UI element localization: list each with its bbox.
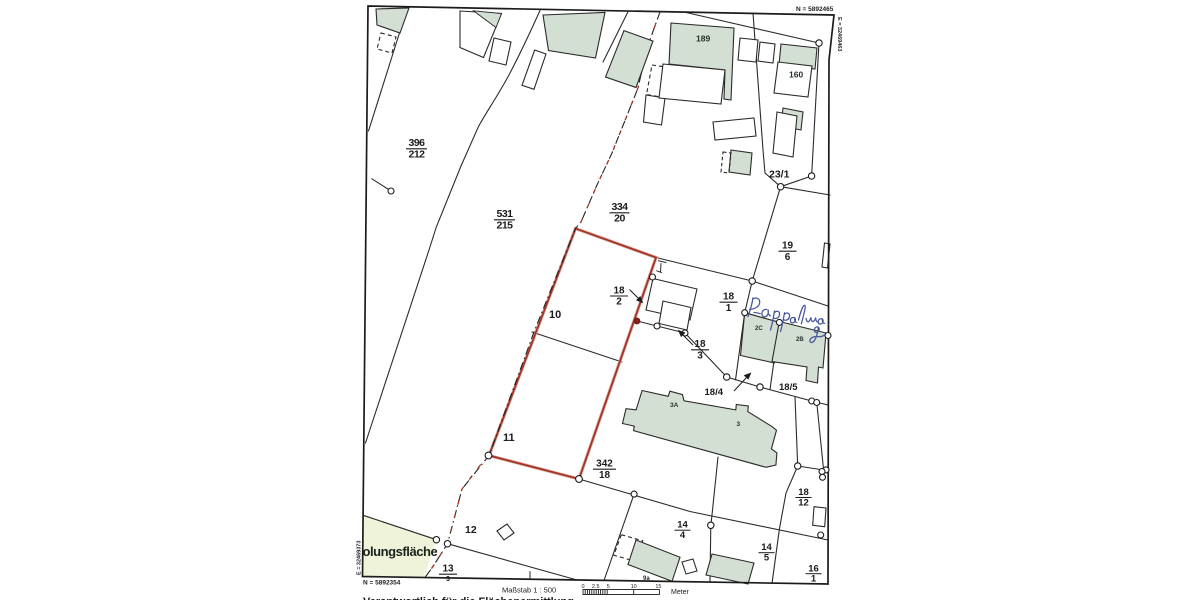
svg-text:5: 5	[764, 553, 770, 564]
svg-text:10: 10	[549, 309, 561, 321]
svg-text:18: 18	[613, 286, 625, 297]
svg-text:Meter: Meter	[671, 589, 690, 596]
svg-text:3A: 3A	[670, 402, 679, 409]
svg-text:160: 160	[789, 70, 803, 80]
svg-text:14: 14	[761, 542, 772, 553]
svg-text:531: 531	[496, 208, 513, 220]
svg-text:11: 11	[503, 432, 515, 444]
svg-text:6: 6	[785, 252, 791, 263]
svg-text:3: 3	[446, 576, 450, 583]
svg-text:olungsfläche: olungsfläche	[363, 544, 438, 559]
svg-text:342: 342	[596, 459, 613, 470]
svg-text:12: 12	[798, 498, 809, 509]
svg-text:18: 18	[599, 470, 611, 481]
svg-text:Verantwortlich für die Flächen: Verantwortlich für die Flächenermittlung	[363, 596, 574, 600]
svg-text:E = 32469373: E = 32469373	[357, 541, 363, 575]
svg-text:215: 215	[496, 220, 513, 232]
svg-text:4: 4	[680, 530, 686, 541]
svg-text:12: 12	[465, 524, 477, 536]
svg-text:N = 5892465: N = 5892465	[796, 6, 834, 13]
svg-text:1: 1	[811, 574, 817, 585]
svg-text:E = 32469463: E = 32469463	[836, 17, 842, 51]
svg-text:2: 2	[616, 297, 622, 308]
svg-text:20: 20	[614, 213, 625, 225]
svg-text:1: 1	[726, 303, 732, 314]
svg-text:19: 19	[782, 241, 794, 252]
svg-text:396: 396	[408, 137, 425, 149]
svg-text:212: 212	[408, 149, 425, 161]
svg-text:2C: 2C	[755, 326, 763, 332]
svg-text:9a: 9a	[643, 576, 650, 582]
svg-text:13: 13	[442, 564, 454, 575]
svg-text:N = 5892354: N = 5892354	[363, 580, 401, 587]
svg-text:18: 18	[694, 339, 706, 350]
svg-text:18/5: 18/5	[779, 382, 798, 393]
svg-text:14: 14	[677, 520, 688, 531]
svg-text:3: 3	[737, 421, 741, 428]
svg-text:18: 18	[723, 292, 735, 303]
svg-text:Maßstab 1 : 500: Maßstab 1 : 500	[502, 586, 556, 595]
svg-text:189: 189	[696, 34, 710, 44]
svg-text:18/4: 18/4	[705, 387, 724, 398]
svg-text:23/1: 23/1	[769, 169, 790, 181]
svg-text:2B: 2B	[796, 337, 804, 343]
svg-text:334: 334	[611, 201, 628, 213]
svg-text:18: 18	[798, 487, 809, 498]
svg-text:3: 3	[697, 351, 703, 362]
